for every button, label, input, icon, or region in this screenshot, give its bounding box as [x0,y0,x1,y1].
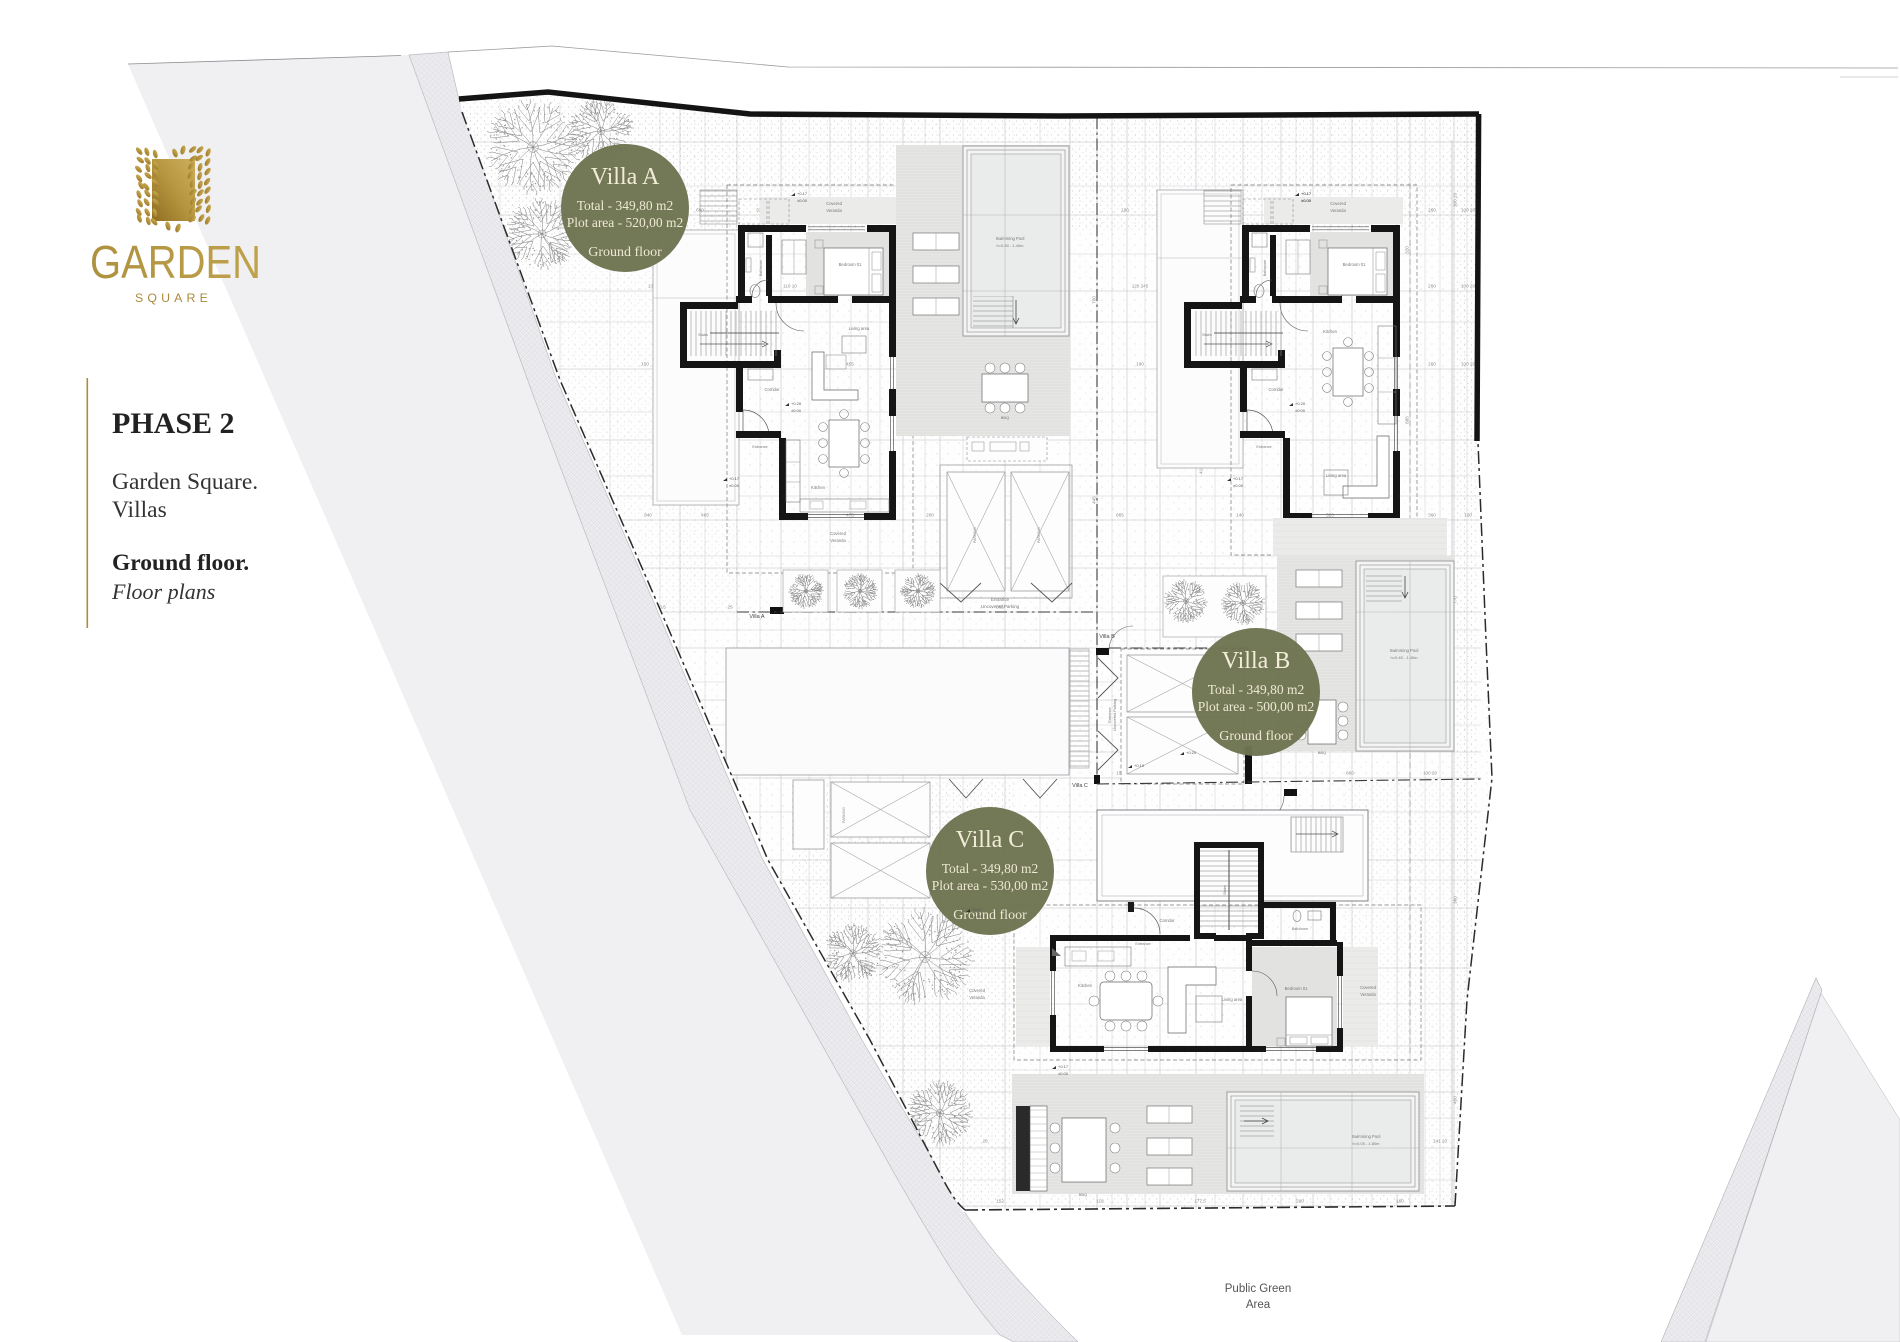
svg-text:±0.00: ±0.00 [1058,1071,1069,1076]
svg-text:±0.00: ±0.00 [1301,198,1312,203]
svg-text:Entrance: Entrance [1135,942,1150,946]
svg-text:260: 260 [1428,208,1436,213]
svg-text:Public Green: Public Green [1225,1283,1291,1295]
svg-text:Corridor: Corridor [1268,387,1284,392]
svg-text:Swimming Pool: Swimming Pool [1352,1134,1381,1139]
svg-text:PHASE 2: PHASE 2 [112,407,235,440]
svg-text:+0.17: +0.17 [972,907,983,912]
svg-text:Covered: Covered [826,201,842,206]
svg-text:Kitchen: Kitchen [1078,983,1093,988]
svg-text:700: 700 [1092,296,1097,304]
svg-text:Living area: Living area [849,326,870,331]
svg-text:20: 20 [982,1139,988,1144]
svg-text:360: 360 [1428,513,1436,518]
svg-text:Covered: Covered [1360,985,1376,990]
svg-text:Bedroom 01: Bedroom 01 [1343,262,1366,267]
svg-text:Villa B: Villa B [1222,648,1291,674]
svg-text:Veranda: Veranda [1330,208,1346,213]
svg-text:Kitchen: Kitchen [1323,329,1338,334]
svg-text:140: 140 [1236,513,1244,518]
svg-text:260: 260 [1428,362,1436,367]
svg-text:Plot area - 520,00 m2: Plot area - 520,00 m2 [567,215,684,230]
svg-text:Stairs: Stairs [698,333,708,337]
svg-text:100: 100 [1464,513,1472,518]
svg-text:Total - 349,80 m2: Total - 349,80 m2 [942,861,1039,876]
svg-text:Entrance: Entrance [752,445,767,449]
svg-text:320: 320 [1405,246,1410,254]
svg-text:Stairs: Stairs [1223,885,1227,895]
svg-text:100 20: 100 20 [1461,362,1475,367]
svg-text:Uncovered Parking: Uncovered Parking [1113,699,1117,731]
svg-text:Villa B: Villa B [1099,634,1115,640]
svg-text:Living area: Living area [1326,473,1347,478]
svg-text:±0.00: ±0.00 [972,914,983,919]
svg-text:Villa C: Villa C [1072,783,1088,789]
svg-text:Veranda: Veranda [969,995,985,1000]
svg-text:Villa C: Villa C [956,827,1025,853]
svg-text:Covered: Covered [969,988,985,993]
svg-text:Plot area - 500,00 m2: Plot area - 500,00 m2 [1198,699,1315,714]
svg-text:Veranda: Veranda [1360,992,1376,997]
svg-text:Ground floor: Ground floor [953,908,1027,923]
svg-text:Corridor: Corridor [1159,918,1175,923]
svg-text:Corridor: Corridor [764,387,780,392]
svg-text:152: 152 [996,1199,1004,1204]
svg-text:PARKING: PARKING [973,527,977,543]
svg-text:PARKING: PARKING [842,807,846,823]
svg-text:Covered: Covered [830,531,846,536]
svg-text:Stairs: Stairs [1202,333,1212,337]
svg-text:150: 150 [641,362,649,367]
svg-text:940: 940 [644,513,652,518]
svg-text:+0.17: +0.17 [797,191,808,196]
svg-text:300 20: 300 20 [1453,193,1458,207]
svg-text:177.5: 177.5 [1194,1199,1206,1204]
svg-text:BBQ: BBQ [1079,1192,1087,1197]
svg-text:Veranda: Veranda [830,538,846,543]
svg-text:+0.17: +0.17 [1233,476,1244,481]
svg-text:118: 118 [1096,1199,1104,1204]
svg-text:+0.17: +0.17 [729,476,740,481]
svg-text:Bathroom: Bathroom [1263,260,1267,276]
svg-text:200: 200 [926,513,934,518]
svg-text:260: 260 [1428,284,1436,289]
svg-text:Bedroom 01: Bedroom 01 [839,262,862,267]
svg-text:+0.20: +0.20 [1186,750,1197,755]
svg-text:±0.00: ±0.00 [1295,408,1306,413]
svg-text:Ground floor: Ground floor [1219,729,1293,744]
svg-text:Villa A: Villa A [749,614,765,620]
svg-text:Villa A: Villa A [591,164,660,190]
svg-text:h=0.05 - 1.80m: h=0.05 - 1.80m [1352,1141,1380,1146]
svg-text:Bedroom 01: Bedroom 01 [1285,986,1308,991]
svg-text:±0.00: ±0.00 [1233,483,1244,488]
svg-text:25: 25 [727,605,733,610]
svg-text:Swimming Pool: Swimming Pool [1390,648,1419,653]
svg-text:Villas: Villas [112,497,167,523]
svg-text:BBQ: BBQ [1318,750,1326,755]
svg-text:h=0.40 - 1.40m: h=0.40 - 1.40m [1390,655,1418,660]
svg-text:PARKING: PARKING [1037,527,1041,543]
svg-text:Entrance: Entrance [1108,707,1112,722]
svg-text:Bathroom: Bathroom [1292,927,1308,931]
svg-text:+0.19: +0.19 [1134,763,1145,768]
svg-text:360: 360 [1453,896,1458,904]
svg-text:455: 455 [846,362,854,367]
svg-text:+0.20: +0.20 [1295,401,1306,406]
svg-text:120 245: 120 245 [1132,284,1149,289]
svg-text:110 10: 110 10 [783,284,797,289]
svg-text:190: 190 [1121,208,1129,213]
svg-text:Living area: Living area [1222,997,1243,1002]
svg-text:Total - 349,80 m2: Total - 349,80 m2 [1208,682,1305,697]
svg-text:665: 665 [1116,513,1124,518]
svg-text:Entrance: Entrance [1256,445,1271,449]
svg-text:Floor plans: Floor plans [111,579,215,604]
svg-text:Plot area - 530,00 m2: Plot area - 530,00 m2 [932,878,1049,893]
svg-text:+0.17: +0.17 [1058,1064,1069,1069]
svg-text:Total - 349,80 m2: Total - 349,80 m2 [577,198,674,213]
svg-text:445: 445 [1092,496,1097,504]
svg-text:450: 450 [1453,1096,1458,1104]
svg-text:±0.00: ±0.00 [797,198,808,203]
svg-text:Bathroom: Bathroom [759,260,763,276]
svg-text:860: 860 [1346,771,1354,776]
svg-text:160: 160 [1396,1199,1404,1204]
svg-text:+0.20: +0.20 [791,401,802,406]
svg-text:Ground floor.: Ground floor. [112,550,249,576]
svg-text:200: 200 [1296,1199,1304,1204]
svg-text:±0.00: ±0.00 [791,408,802,413]
svg-text:Garden Square.: Garden Square. [112,469,258,495]
svg-text:h=0.80 - 1.40m: h=0.80 - 1.40m [996,243,1024,248]
svg-text:GARDEN: GARDEN [90,236,261,288]
svg-text:190: 190 [1136,362,1144,367]
svg-text:Kitchen: Kitchen [811,485,826,490]
svg-text:Covered: Covered [1330,201,1346,206]
svg-text:475: 475 [846,513,854,518]
svg-text:Veranda: Veranda [826,208,842,213]
svg-text:100 20: 100 20 [1461,208,1475,213]
svg-text:Ground floor: Ground floor [588,245,662,260]
svg-text:Uncovered Parking: Uncovered Parking [981,604,1020,609]
svg-text:Area: Area [1246,1299,1271,1311]
svg-text:BBQ: BBQ [1001,415,1009,420]
svg-text:100 20: 100 20 [1461,284,1475,289]
svg-text:SQUARE: SQUARE [135,291,212,305]
svg-text:Entrance: Entrance [991,597,1010,602]
svg-text:885: 885 [1405,416,1410,424]
svg-text:+0.17: +0.17 [1301,191,1312,196]
svg-text:±0.00: ±0.00 [729,483,740,488]
svg-text:Swimming Pool: Swimming Pool [996,236,1025,241]
